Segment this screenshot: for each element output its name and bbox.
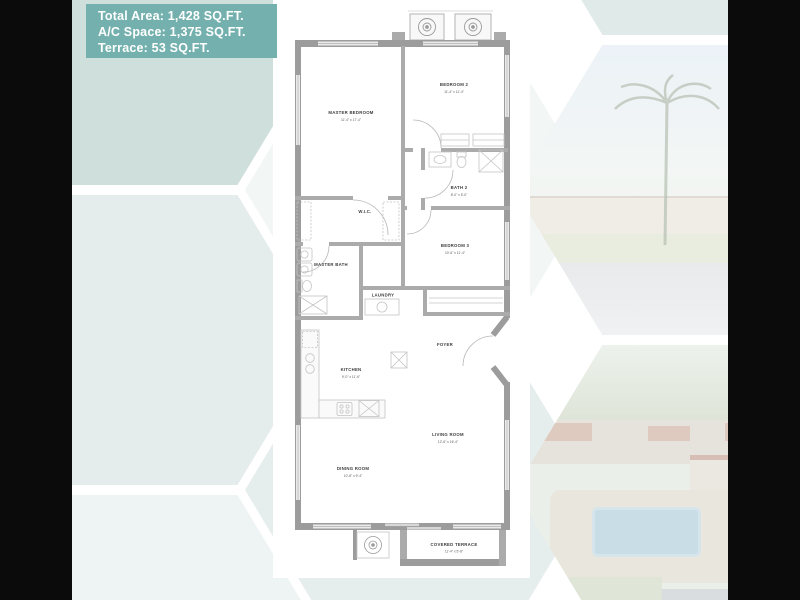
entry-corner-walls [493,317,507,385]
room-label-bedroom-2: BEDROOM 2 [440,82,469,87]
room-dims-bedroom-2: 11'-4" x 11'-4" [444,90,465,94]
room-label-covered-terrace: COVERED TERRACE [431,542,478,547]
terrace-line: Terrace: 53 SQ.FT. [98,40,277,56]
total-area-line: Total Area: 1,428 SQ.FT. [98,8,277,24]
room-dims-kitchen: 9'-0" x 11'-6" [342,375,361,379]
terrace-condenser-icon [357,532,389,558]
kitchen-counter-icon [301,330,385,418]
flyer-canvas: Total Area: 1,428 SQ.FT. A/C Space: 1,37… [0,0,800,600]
room-label-bedroom-3: BEDROOM 3 [441,243,470,248]
room-dims-dining-room: 10'-8" x 9'-4" [344,474,363,478]
room-label-living-room: LIVING ROOM [432,432,464,437]
room-label-master-bedroom: MASTER BEDROOM [328,110,373,115]
master-bath-shower-icon [299,296,327,314]
room-label-laundry: LAUNDRY [372,293,395,298]
condenser-units [408,11,493,40]
left-letterbox-bar [0,0,72,600]
hex-tile [515,0,728,35]
room-label-foyer: FOYER [437,342,454,347]
bath2-shower-icon [479,150,503,172]
room-label-bath-2: BATH 2 [451,185,468,190]
foyer-closet-icon [391,352,407,368]
right-letterbox-bar [728,0,800,600]
bedroom2-closet-icon [441,134,504,146]
ac-space-line: A/C Space: 1,375 SQ.FT. [98,24,277,40]
floor-plan-sheet: MASTER BEDROOM 11'-4" x 17'-4" BEDROOM 2… [273,0,530,578]
room-dims-bath-2: 8'-0" x 5'-0" [451,193,468,197]
room-label-dining-room: DINING ROOM [337,466,370,471]
floor-plan-svg: MASTER BEDROOM 11'-4" x 17'-4" BEDROOM 2… [273,0,530,578]
room-dims-bedroom-3: 10'-6" x 11'-4" [445,251,466,255]
bedroom3-closet-icon [429,298,503,303]
room-label-master-bath: MASTER BATH [314,262,348,267]
room-dims-living-room: 12'-6" x 16'-4" [438,440,459,444]
room-label-wic: W.I.C. [358,209,371,214]
area-stats-badge: Total Area: 1,428 SQ.FT. A/C Space: 1,37… [86,4,277,58]
room-label-kitchen: KITCHEN [341,367,362,372]
room-dims-master-bedroom: 11'-4" x 17'-4" [341,118,362,122]
wic-shelving-icon [297,202,399,240]
laundry-machines-icon [365,299,399,315]
photo-fade-overlay [515,45,728,335]
bath2-vanity-icon [429,152,451,167]
bath2-toilet-icon [457,152,466,168]
community-street-photo [515,45,728,335]
room-dims-covered-terrace: 11'-4" x 5'-8" [445,550,464,554]
